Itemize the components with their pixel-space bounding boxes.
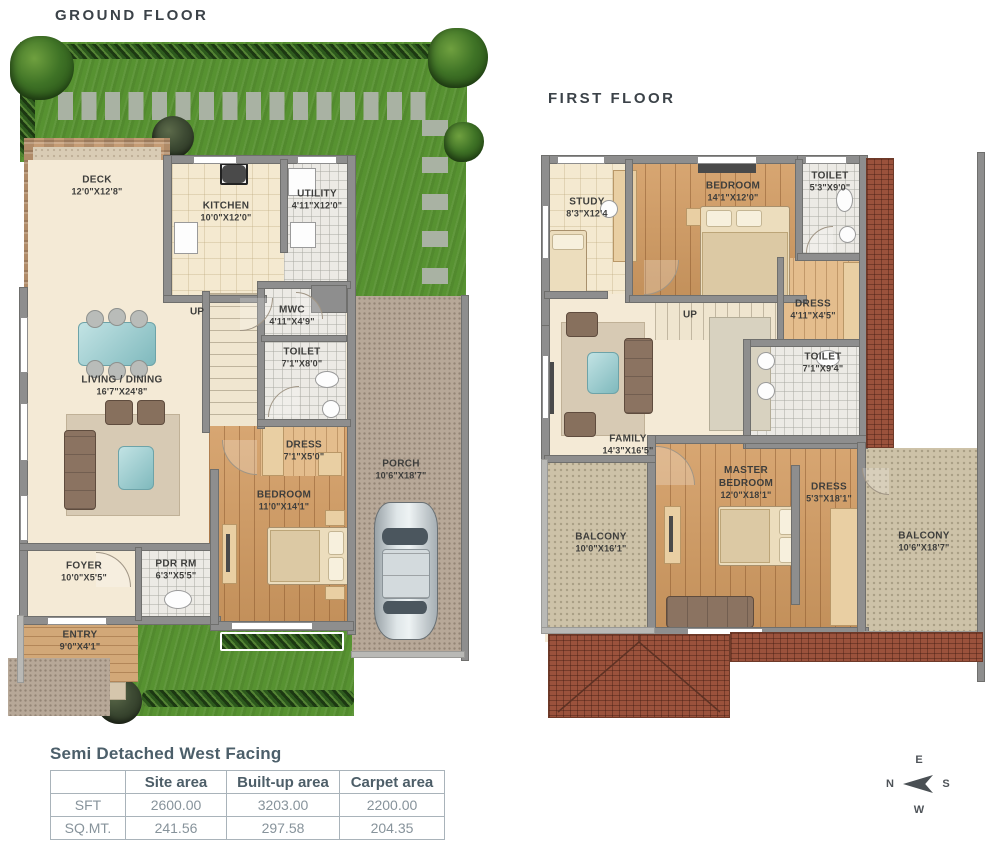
pdr-name: PDR RM [155, 558, 196, 571]
compass-north-label: N [886, 778, 894, 790]
study-name: STUDY [566, 196, 607, 209]
roof-hip-lines [548, 634, 730, 718]
balcony-right-name: BALCONY [898, 530, 950, 543]
spec-title: Semi Detached West Facing [50, 744, 445, 764]
room-label-pdr: PDR RM 6'3"X5'5" [155, 558, 196, 583]
room-label-deck: DECK 12'0"X12'8" [71, 174, 122, 199]
spec-cell: 2200.00 [340, 794, 445, 817]
window [543, 356, 548, 418]
tv-icon [226, 534, 230, 572]
living-armchair [137, 400, 165, 425]
nightstand [325, 586, 345, 600]
living-sofa [64, 430, 96, 510]
room-label-living: LIVING / DINING 16'7"X24'8" [81, 374, 162, 399]
study-desk [613, 170, 637, 262]
family-dims: 14'3"X16'5" [602, 446, 653, 458]
wall-segment [648, 436, 866, 443]
room-label-balcony-left: BALCONY 10'0"X16'1" [575, 531, 627, 556]
pillow [736, 210, 762, 227]
nightstand [686, 208, 701, 226]
wall-segment [746, 340, 866, 346]
kitchen-name: KITCHEN [200, 200, 251, 213]
balcony-rail [542, 628, 654, 633]
window [194, 157, 236, 163]
toilet-bowl-icon [315, 371, 339, 388]
room-label-utility: UTILITY 4'11"X12'0" [292, 188, 343, 213]
compass-west-label: W [914, 804, 924, 816]
window [232, 623, 312, 629]
wall-segment [744, 340, 750, 448]
living-armchair [105, 400, 133, 425]
sink-icon [757, 352, 775, 370]
wall-segment [281, 160, 287, 252]
window [21, 404, 27, 460]
room-label-dress-top: DRESS 4'11"X4'5" [790, 298, 835, 323]
room-label-entry: ENTRY 9'0"X4'1" [60, 629, 101, 654]
room-label-master: MASTER BEDROOM 12'0"X18'1" [704, 464, 788, 502]
nightstand [325, 510, 345, 526]
family-armchair [564, 412, 596, 437]
spec-table-block: Semi Detached West Facing Site area Buil… [50, 744, 445, 840]
pillow [552, 234, 584, 250]
wall-segment [262, 336, 346, 341]
master-sofa [666, 596, 754, 628]
wall-segment [798, 254, 866, 260]
room-label-bedroom-gf: BEDROOM 11'0"X14'1" [257, 489, 311, 514]
dress-top-name: DRESS [790, 298, 835, 311]
family-sofa [624, 338, 653, 414]
living-dims: 16'7"X24'8" [81, 387, 162, 399]
partition-wall [792, 466, 799, 604]
dress-master-name: DRESS [806, 481, 852, 494]
first-floor-title: FIRST FLOOR [548, 90, 676, 107]
car-rear-window [383, 601, 427, 614]
master-name: MASTER BEDROOM [704, 464, 788, 490]
coffee-table [118, 446, 154, 490]
wall-segment [136, 548, 141, 620]
spec-cell: 204.35 [340, 817, 445, 840]
living-name: LIVING / DINING [81, 374, 162, 387]
toilet-mid-dims: 7'1"X9'4" [803, 364, 844, 376]
ff-bedroom-name: BEDROOM [706, 180, 760, 193]
stove-icon [220, 163, 248, 185]
toilet-dims: 7'1"X8'0" [282, 359, 323, 371]
window [558, 157, 604, 163]
roof-strip-right [866, 158, 894, 448]
stepping-stones-row [58, 92, 430, 120]
entry-dims: 9'0"X4'1" [60, 642, 101, 654]
table-row: SQ.MT. 241.56 297.58 204.35 [51, 817, 445, 840]
sink-icon [839, 226, 856, 243]
spec-row-label: SQ.MT. [51, 817, 126, 840]
entry-name: ENTRY [60, 629, 101, 642]
family-name: FAMILY [602, 433, 653, 446]
dress-dims: 7'1"X5'0" [284, 452, 325, 464]
window [298, 157, 336, 163]
wall-segment [18, 616, 23, 682]
spec-cell: 3203.00 [227, 794, 340, 817]
master-wardrobe [830, 508, 859, 626]
room-label-dress-master: DRESS 5'3"X18'1" [806, 481, 852, 506]
foyer-name: FOYER [61, 560, 107, 573]
dining-chair [86, 310, 104, 328]
ground-floor-title: GROUND FLOOR [55, 7, 208, 24]
pillow [328, 557, 344, 581]
wall-segment [164, 156, 171, 302]
pdr-dims: 6'3"X5'5" [155, 571, 196, 583]
spec-header-blank [51, 771, 126, 794]
spec-row-label: SFT [51, 794, 126, 817]
pillow [328, 531, 344, 555]
deck-dims: 12'0"X12'8" [71, 187, 122, 199]
toilet-mid-name: TOILET [803, 351, 844, 364]
mwc-dims: 4'11"X4'9" [269, 317, 314, 329]
ff-stair-landing [710, 318, 770, 430]
mwc-name: MWC [269, 304, 314, 317]
boundary-wall [978, 153, 984, 681]
fridge-icon [174, 222, 198, 254]
room-label-family: FAMILY 14'3"X16'5" [602, 433, 653, 458]
balcony-rail [542, 460, 547, 632]
hedge-bottom [142, 690, 354, 707]
wall-segment [778, 258, 783, 346]
gf-side-path [8, 658, 110, 716]
pillow [706, 210, 732, 227]
toilet-top-dims: 5'3"X9'0" [810, 183, 851, 195]
spec-header-site: Site area [126, 771, 227, 794]
dining-chair [108, 308, 126, 326]
wall-segment [348, 156, 355, 634]
compass-east-label: E [915, 754, 922, 766]
car-roof [382, 549, 430, 599]
up-label-gf: UP [190, 307, 204, 318]
utility-name: UTILITY [292, 188, 343, 201]
roof-strip-bottom-right [730, 632, 983, 662]
room-label-porch: PORCH 10'6"X18'7" [375, 458, 426, 483]
dress-top-dims: 4'11"X4'5" [790, 311, 835, 323]
wall-segment [211, 470, 218, 624]
wall-segment [258, 420, 350, 426]
window [543, 206, 548, 258]
boundary-wall [462, 296, 468, 660]
up-label-ff: UP [683, 310, 697, 321]
spec-header-builtup: Built-up area [227, 771, 340, 794]
spec-cell: 241.56 [126, 817, 227, 840]
room-label-mwc: MWC 4'11"X4'9" [269, 304, 314, 329]
toilet-name: TOILET [282, 346, 323, 359]
window [21, 318, 27, 372]
bedroom-dresser [698, 164, 756, 173]
wall-segment [796, 160, 802, 260]
spec-table: Site area Built-up area Carpet area SFT … [50, 770, 445, 840]
window [698, 157, 756, 163]
room-label-balcony-right: BALCONY 10'6"X18'7" [898, 530, 950, 555]
balcony-left-name: BALCONY [575, 531, 627, 544]
dining-table [78, 322, 156, 366]
room-label-toilet-gf: TOILET 7'1"X8'0" [282, 346, 323, 371]
tree-icon [428, 28, 488, 88]
room-label-bedroom-ff: BEDROOM 14'1"X12'0" [706, 180, 760, 205]
deck-name: DECK [71, 174, 122, 187]
bedroom-name: BEDROOM [257, 489, 311, 502]
window [21, 496, 27, 540]
room-label-study: STUDY 8'3"X12'4 [566, 196, 607, 221]
pdr-sink-icon [164, 590, 192, 609]
planter-box [220, 632, 344, 651]
room-label-toilet-top: TOILET 5'3"X9'0" [810, 170, 851, 195]
wall-segment [626, 160, 632, 302]
garden-right [352, 158, 466, 304]
kitchen-dims: 10'0"X12'0" [200, 213, 251, 225]
study-dims: 8'3"X12'4 [566, 209, 607, 221]
wall-segment [545, 292, 607, 298]
gf-dress-closet [262, 426, 284, 476]
toilet-top-name: TOILET [810, 170, 851, 183]
tree-icon [444, 122, 484, 162]
family-coffee-table [587, 352, 619, 394]
dress-name: DRESS [284, 439, 325, 452]
ff-bedroom-dims: 14'1"X12'0" [706, 193, 760, 205]
wall-segment [352, 652, 464, 657]
ff-bed-blanket [702, 232, 788, 296]
hedge-top [30, 44, 442, 59]
room-label-toilet-mid: TOILET 7'1"X9'4" [803, 351, 844, 376]
wall-segment [20, 544, 218, 550]
washer-icon [290, 222, 316, 248]
table-row: SFT 2600.00 3203.00 2200.00 [51, 794, 445, 817]
room-label-dress-gf: DRESS 7'1"X5'0" [284, 439, 325, 464]
car-windshield [382, 528, 428, 545]
porch-dims: 10'6"X18'7" [375, 471, 426, 483]
balcony-left-dims: 10'0"X16'1" [575, 544, 627, 556]
utility-dims: 4'11"X12'0" [292, 201, 343, 213]
family-armchair [566, 312, 598, 337]
balcony-right-dims: 10'6"X18'7" [898, 543, 950, 555]
foyer-dims: 10'0"X5'5" [61, 573, 107, 585]
spec-cell: 2600.00 [126, 794, 227, 817]
room-label-kitchen: KITCHEN 10'0"X12'0" [200, 200, 251, 225]
spec-header-carpet: Carpet area [340, 771, 445, 794]
master-bed-blanket [720, 509, 770, 563]
dress-master-dims: 5'3"X18'1" [806, 494, 852, 506]
bedroom-dims: 11'0"X14'1" [257, 502, 311, 514]
wall-segment [648, 436, 655, 636]
gf-bed-blanket [270, 530, 320, 582]
dining-chair [130, 310, 148, 328]
sink-icon [757, 382, 775, 400]
tv-icon [669, 516, 673, 552]
room-label-foyer: FOYER 10'0"X5'5" [61, 560, 107, 585]
spec-cell: 297.58 [227, 817, 340, 840]
compass-south-label: S [942, 778, 949, 790]
window [806, 157, 846, 163]
window [48, 618, 106, 624]
porch-name: PORCH [375, 458, 426, 471]
compass-arrow-icon [903, 775, 933, 793]
master-dims: 12'0"X18'1" [704, 490, 788, 502]
sink-icon [322, 400, 340, 418]
